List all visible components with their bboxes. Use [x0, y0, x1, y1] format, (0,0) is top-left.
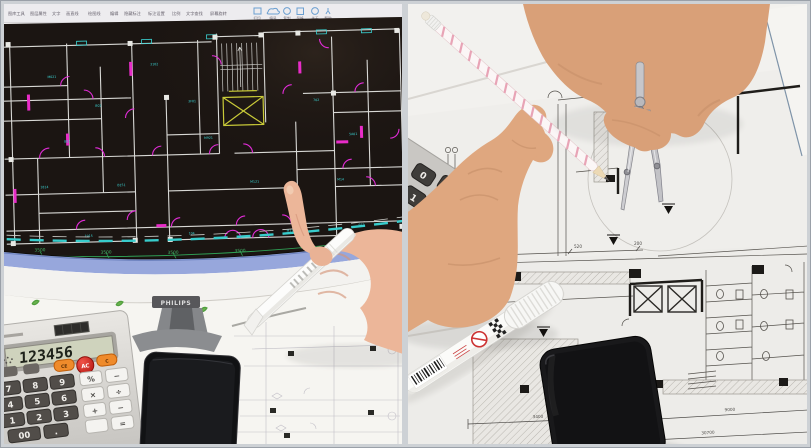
- calculator: 123456 CE AC C 7 8 9 4: [4, 310, 144, 444]
- key-multiply: ×: [89, 390, 96, 400]
- room-label: M14: [337, 177, 344, 181]
- right-photo-svg: 3400 9000 30700 2000 520 200 0: [408, 4, 807, 444]
- room-label: M021: [47, 75, 56, 79]
- room-label: 1915: [85, 234, 93, 238]
- dim-9000: 9000: [724, 407, 735, 413]
- menu-item: 文字: [52, 10, 60, 17]
- room-label: 3102: [150, 62, 158, 66]
- menu-item: 文字查找: [186, 10, 204, 17]
- dim-label: 3500: [168, 250, 179, 256]
- menu-item: 绘图线: [88, 10, 101, 17]
- room-label: 3F01: [188, 99, 196, 103]
- phone2-screen: [544, 340, 662, 444]
- smartphone-left: [139, 352, 241, 444]
- compass-stem: [636, 62, 644, 100]
- menu-item: 图库工具: [8, 10, 26, 17]
- menu-item: 画直线: [66, 10, 79, 17]
- dim-200: 200: [634, 241, 642, 246]
- monitor-brand: PHILIPS: [152, 296, 200, 308]
- room-label: M921: [204, 136, 213, 140]
- key-divide: ÷: [115, 387, 122, 397]
- menu-item: 屏幕旋转: [210, 10, 227, 17]
- dim-label: 3500: [235, 248, 246, 254]
- key-00: 00: [18, 430, 31, 441]
- room-label: B151: [117, 183, 125, 187]
- menu-item: 编辑: [110, 10, 118, 17]
- compass-joint-left: [624, 169, 630, 175]
- compass-joint-right: [654, 163, 660, 169]
- room-label: B02: [95, 104, 101, 108]
- menu-item: 比例: [172, 10, 180, 17]
- memory-key: [23, 363, 40, 375]
- ac-key-label: AC: [81, 363, 90, 370]
- dim-520: 520: [574, 244, 582, 249]
- menu-item: 图层属性: [30, 10, 47, 17]
- room-label: M121: [250, 180, 259, 184]
- brand-text: PHILIPS: [161, 300, 192, 307]
- ce-key-label: CE: [61, 363, 68, 370]
- dim-label: 3500: [101, 249, 112, 255]
- key-minus: −: [113, 371, 120, 381]
- dim-30700: 30700: [701, 430, 715, 436]
- compass-head: [635, 97, 645, 107]
- smartphone-right: [538, 334, 668, 444]
- phone-screen: [144, 357, 235, 444]
- room-label: 5A01: [349, 132, 357, 136]
- left-photo-svg: 图库工具 图层属性 文字 画直线 绘图线 编辑 隐藏标注 标注设置 比例 文字查…: [4, 4, 402, 444]
- room-label: 1814: [40, 185, 48, 189]
- key-equals: =: [119, 419, 126, 429]
- cad-menu-items: 图库工具 图层属性 文字 画直线 绘图线 编辑 隐藏标注 标注设置 比例 文字查…: [8, 10, 227, 17]
- dim-3400: 3400: [533, 414, 544, 419]
- dim-label: 3500: [34, 247, 45, 253]
- room-label: 702: [313, 98, 319, 102]
- right-photo-blueprints: 3400 9000 30700 2000 520 200 0: [408, 4, 807, 444]
- key-minus2: −: [117, 403, 124, 413]
- photo-collage: 图库工具 图层属性 文字 画直线 绘图线 编辑 隐藏标注 标注设置 比例 文字查…: [0, 0, 811, 448]
- menu-item: 隐藏标注: [124, 10, 142, 17]
- key-plus: +: [91, 406, 98, 416]
- room-label: 802: [64, 140, 70, 144]
- menu-item: 标注设置: [148, 10, 165, 17]
- left-photo-cad-monitor: 图库工具 图层属性 文字 画直线 绘图线 编辑 隐藏标注 标注设置 比例 文字查…: [4, 4, 402, 444]
